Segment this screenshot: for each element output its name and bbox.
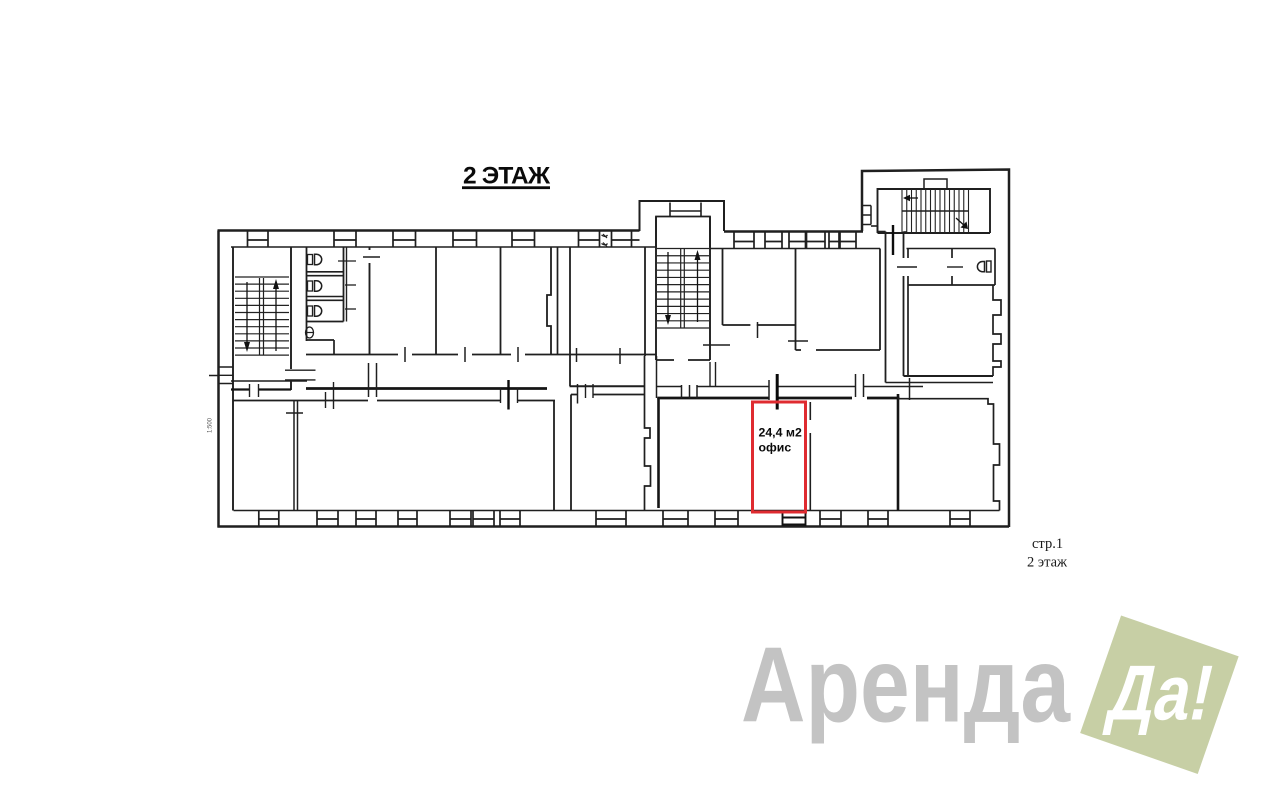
svg-text:1:500: 1:500	[208, 417, 214, 433]
svg-text:2 ЭТАЖ: 2 ЭТАЖ	[463, 163, 551, 190]
svg-text:стр.1: стр.1	[1032, 536, 1063, 552]
svg-text:2 этаж: 2 этаж	[1027, 555, 1068, 571]
svg-text:Да!: Да!	[1101, 649, 1221, 736]
svg-text:офис: офис	[759, 440, 792, 454]
svg-text:Аренда: Аренда	[741, 625, 1071, 745]
svg-text:24,4 м2: 24,4 м2	[759, 425, 802, 439]
